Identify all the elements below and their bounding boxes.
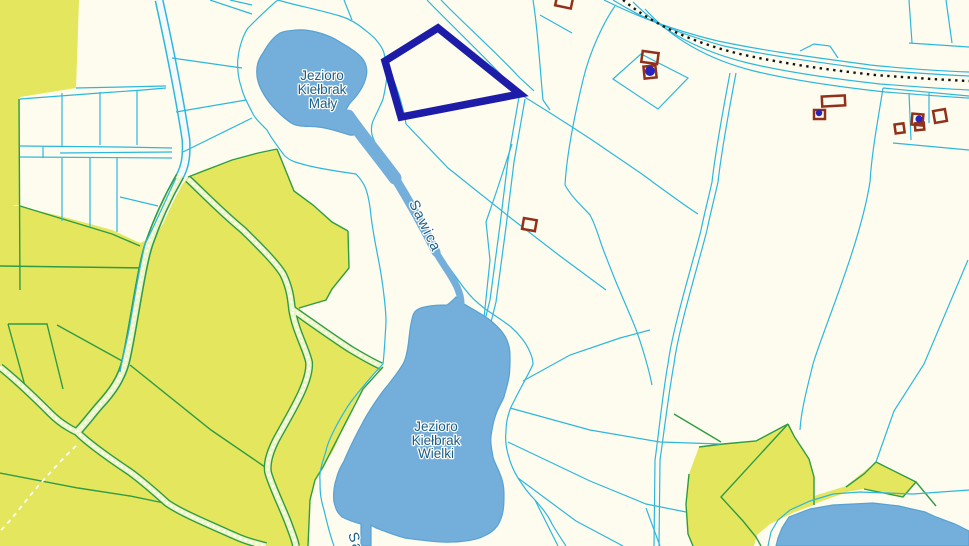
svg-text:Jezioro: Jezioro <box>414 419 458 434</box>
svg-text:Kiełbrak: Kiełbrak <box>298 82 347 97</box>
svg-text:Mały: Mały <box>309 96 338 111</box>
svg-text:Wielki: Wielki <box>418 446 454 461</box>
svg-text:Jezioro: Jezioro <box>300 68 344 83</box>
